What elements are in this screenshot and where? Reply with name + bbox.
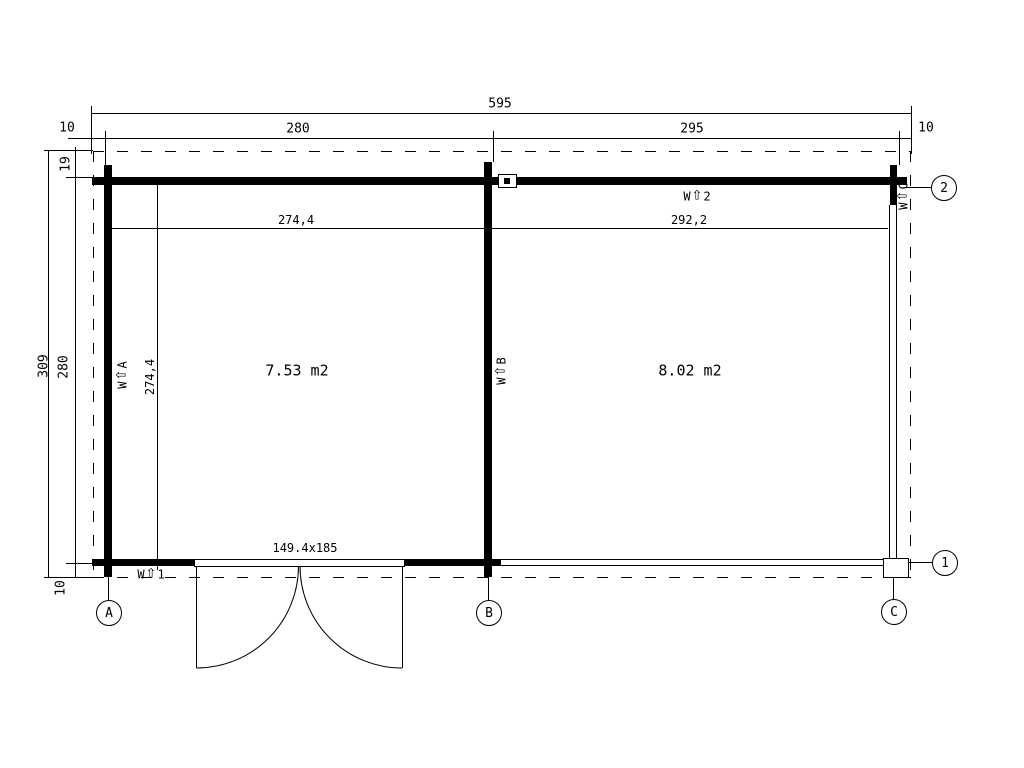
wall-label-id: 2 bbox=[703, 190, 710, 202]
wall-label-id: 1 bbox=[157, 568, 164, 580]
grid-bubble-2: 2 bbox=[931, 175, 957, 201]
wall-label-id: C bbox=[897, 182, 909, 189]
grid-bubble-c-label: C bbox=[890, 606, 898, 619]
grid-leader-c bbox=[893, 577, 894, 599]
grid-bubble-a: A bbox=[96, 600, 122, 626]
grid-bubble-a-label: A bbox=[105, 607, 113, 620]
door-size-label: 149.4x185 bbox=[272, 542, 337, 554]
grid-bubble-2-label: 2 bbox=[940, 182, 948, 195]
grid-leader-b bbox=[488, 577, 489, 600]
room-left-area-label: 7.53 m2 bbox=[265, 364, 328, 379]
wall-label-prefix: W bbox=[137, 568, 144, 580]
grid-bubble-1-label: 1 bbox=[941, 557, 949, 570]
wall-direction-arrow-icon: ⇧ bbox=[116, 369, 129, 382]
wall-direction-arrow-icon: ⇧ bbox=[691, 190, 704, 203]
floor-plan-drawing: 595 10 280 295 10 309 280 19 10 274,4 29… bbox=[0, 0, 1024, 768]
wall-label-id: A bbox=[116, 361, 128, 368]
grid-bubble-b-label: B bbox=[485, 607, 493, 620]
room-right-area-label: 8.02 m2 bbox=[658, 364, 721, 379]
grid-leader-1 bbox=[908, 562, 932, 563]
grid-bubble-1: 1 bbox=[932, 550, 958, 576]
wall-label-prefix: W bbox=[116, 381, 128, 388]
wall-label-prefix: W bbox=[495, 377, 507, 384]
wall-label-wa: W⇧A bbox=[116, 361, 129, 388]
grid-bubble-c: C bbox=[881, 599, 907, 625]
wall-label-id: B bbox=[495, 357, 507, 364]
wall-label-w2: W⇧2 bbox=[683, 190, 710, 203]
wall-label-prefix: W bbox=[897, 202, 909, 209]
wall-direction-arrow-icon: ⇧ bbox=[495, 365, 508, 378]
wall-label-w1: W⇧1 bbox=[137, 568, 164, 581]
wall-label-prefix: W bbox=[683, 190, 690, 202]
wall-label-wb: W⇧B bbox=[495, 357, 508, 384]
door-swing-arcs bbox=[0, 0, 1024, 768]
wall-direction-arrow-icon: ⇧ bbox=[145, 568, 158, 581]
grid-leader-2 bbox=[905, 187, 931, 188]
wall-direction-arrow-icon: ⇧ bbox=[897, 190, 910, 203]
grid-bubble-b: B bbox=[476, 600, 502, 626]
grid-leader-a bbox=[108, 577, 109, 600]
